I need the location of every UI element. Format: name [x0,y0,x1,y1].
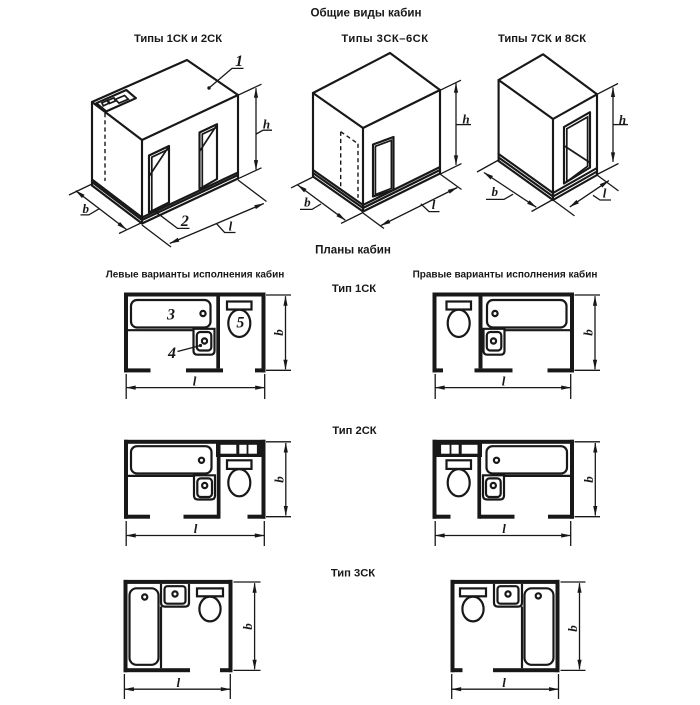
svg-text:b: b [304,195,311,210]
svg-text:l: l [193,373,197,388]
svg-text:Типы 3СК–6СК: Типы 3СК–6СК [341,33,428,45]
svg-text:b: b [581,476,596,483]
svg-text:4: 4 [167,345,176,362]
svg-text:Типы 7СК и 8СК: Типы 7СК и 8СК [498,33,586,45]
svg-text:Общие виды кабин: Общие виды кабин [310,7,421,20]
svg-text:l: l [502,521,506,536]
svg-text:Тип 3СК: Тип 3СК [331,567,375,579]
svg-text:b: b [581,329,596,336]
svg-text:l: l [176,675,180,690]
svg-text:h: h [619,112,626,127]
svg-text:l: l [502,675,506,690]
svg-text:l: l [229,218,233,233]
svg-text:l: l [194,521,198,536]
svg-text:1: 1 [235,53,243,70]
svg-text:Левые варианты исполнения каби: Левые варианты исполнения кабин [106,268,285,280]
svg-text:l: l [432,197,436,212]
svg-text:Типы 1СК и 2СК: Типы 1СК и 2СК [134,33,222,45]
svg-text:h: h [263,116,270,131]
svg-text:b: b [82,201,89,216]
svg-text:3: 3 [166,306,175,323]
svg-text:b: b [271,476,286,483]
svg-text:b: b [271,329,286,336]
svg-text:2: 2 [180,213,189,230]
svg-text:l: l [502,373,506,388]
svg-text:b: b [565,625,580,632]
svg-text:b: b [240,623,255,630]
svg-text:b: b [491,184,498,199]
svg-text:l: l [603,186,607,201]
svg-text:Планы кабин: Планы кабин [315,244,391,257]
svg-text:Тип 2СК: Тип 2СК [332,425,376,437]
svg-text:5: 5 [236,315,244,332]
svg-text:Тип 1СК: Тип 1СК [332,283,376,295]
svg-text:h: h [462,111,469,126]
svg-text:Правые варианты исполнения каб: Правые варианты исполнения кабин [413,268,598,280]
